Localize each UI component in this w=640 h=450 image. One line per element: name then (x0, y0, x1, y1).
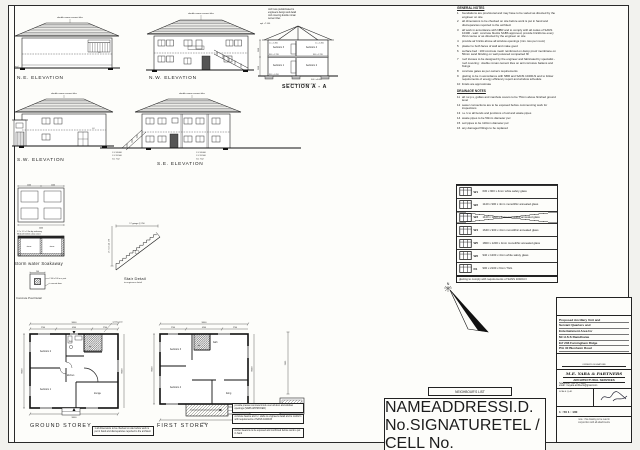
section-dim-lower: 2550 (258, 66, 260, 70)
title-block-spacer (557, 298, 631, 316)
window-description: 1140 x 1200 x 4mm monolithic annealed gl… (483, 216, 540, 219)
window-icon (459, 264, 472, 273)
note-item: 4 provide air bricks above all window op… (457, 40, 560, 43)
window-description: 1140 x 900 x 4mm monolithic annealed gla… (483, 203, 539, 206)
note-item: 6 surface bed : 100 concrete mesh reinfo… (457, 50, 560, 57)
lintols-note-box: provide precast concrete lintols over al… (232, 403, 304, 413)
note-text: i.e.'s to all bends and junctions of soi… (462, 112, 560, 115)
architectural-drawing-sheet: double roman cement tiles f.f.l n.g.l N.… (0, 0, 640, 450)
gplan-room-e: lounge (94, 393, 102, 395)
firm-box: M.E. YARA & PARTNERS ARCHITECTURAL SERVI… (557, 370, 631, 389)
firm-name: M.E. YARA & PARTNERS (559, 371, 629, 376)
scales-value: 1 : 50 1 : 100 (559, 410, 577, 414)
stair-detail-sublabel: to engineers detail (124, 282, 142, 284)
window-icon (459, 200, 472, 209)
window-icon (459, 187, 472, 196)
window-description: 900 x 2100 x 6mm TGG (483, 267, 513, 270)
ne-ngl-text: n.g.l (15, 66, 19, 68)
note-text: glazing to be in accordance with NBR and… (462, 75, 560, 82)
architect-signature-icon (599, 390, 629, 404)
note-item: 15 soil pipes to be 110mm diameter pvc (457, 122, 560, 125)
stair-side-dim: 17 risers @ 176 (109, 238, 111, 253)
gplan-seg-1: 2700 (41, 327, 45, 329)
window-icon (459, 213, 472, 222)
section-lvl-mr: F.F.L +2.720 (313, 54, 323, 56)
note-text: soil pipes to be 110mm diameter pvc (462, 122, 560, 125)
window-description: 940 x 1200 x 4mm white safety glass (483, 254, 529, 257)
window-description: 1800 x 1200 x 4mm monolithic annealed gl… (483, 242, 541, 245)
note-item: 2 all dimensions to be checked on site b… (457, 20, 560, 27)
neighbours-column-header: ADDRESS (431, 399, 508, 416)
section-note-4: cement tiles (268, 17, 281, 20)
note-item: 11 all r.w.p.s, gullies and manhole cove… (457, 96, 560, 103)
se-elevation-drawing: double roman cement tiles (96, 90, 306, 164)
se-level-2b: C.L 95.500 (196, 155, 207, 157)
soakaway-drawing: 1200 1200 2400 1.2 x 1.2 x 2.0m dp soaka… (12, 184, 74, 260)
fplan-room-b: bath (213, 341, 218, 344)
window-code: W5 (474, 241, 481, 245)
soakaway-dim-a: 1200 (27, 185, 31, 187)
note-item: 13 i.e.'s to all bends and junctions of … (457, 112, 560, 115)
note-item: 9 glazing to be in accordance with NBR a… (457, 75, 560, 82)
window-schedule: W1 630 x 900 x 4mm white safety glass W2… (456, 184, 558, 276)
gplan-awning-note: awning over (113, 321, 124, 324)
dimensions-note-box: 1 all dimensions to be checked on site b… (92, 426, 154, 436)
note-text: all r.w.p.s, gullies and manhole covers … (462, 96, 560, 103)
se-elevation-label: S.E. ELEVATION (157, 162, 203, 167)
window-icon (459, 226, 472, 235)
section-room-bl: bedroom 1 (273, 64, 285, 67)
se-level-3a: G.L 7.62 (112, 158, 120, 160)
section-wpl: wpl +7.140 (260, 23, 271, 25)
section-lvl-tr: C.L +5.350 (315, 43, 324, 45)
fplan-seg-2: 4200 (202, 327, 206, 329)
post-note-2: concrete base (51, 282, 62, 285)
project-title-line: P/A 40 Blenheim Road (559, 346, 629, 352)
drainage-notes-title: DRAINAGE NOTES (457, 90, 560, 94)
fplan-dim-left: 8600 (152, 366, 154, 372)
ne-elevation-label: N.E. ELEVATION (17, 76, 64, 81)
post-dim: 200 (36, 271, 39, 273)
window-icon (459, 251, 472, 260)
note-item: 8 concrete gates as per owners requireme… (457, 70, 560, 73)
section-room-br: bedroom 2 (306, 64, 318, 67)
note-text: any damaged fittings to be replaced (462, 127, 560, 130)
neighbours-column-header: SIGNATURE (410, 417, 502, 434)
note-item: 16 any damaged fittings to be replaced (457, 127, 560, 130)
section-room-tr: bedroom 4 (306, 46, 318, 49)
fplan-room-d: living (226, 393, 232, 395)
gplan-seg-3: 2700 (103, 327, 107, 329)
window-code: W3 (474, 215, 481, 219)
note-text: all work in accordance with NBR and to c… (462, 29, 560, 39)
gplan-dim-right: 8600 (122, 368, 124, 374)
window-schedule-entry: W5 1800 x 1200 x 4mm monolithic annealed… (457, 236, 557, 249)
soakaway-cell-1: stone (27, 245, 32, 248)
note-text: roof trusses to be designed by the engin… (462, 58, 560, 68)
window-code: W2 (474, 203, 481, 207)
section-note-3: roof covering double roman (268, 14, 297, 17)
note-text: sewer connections are to be exposed befo… (462, 104, 560, 111)
gplan-stair-text: up (89, 346, 91, 348)
ne-elevation-drawing: double roman cement tiles f.f.l n.g.l (12, 14, 122, 78)
footer-line-2: conjunction with all attachments (557, 422, 631, 425)
window-schedule-entry: W1 630 x 900 x 4mm white safety glass (457, 185, 557, 198)
window-schedule-entry: W6 940 x 1200 x 4mm white safety glass (457, 249, 557, 262)
ground-storey-plan: 9600 2700 4200 2700 8600 8600 9600 bedro… (16, 316, 132, 424)
sw-elevation-label: S.W. ELEVATION (17, 158, 64, 163)
window-description: 1640 x 900 x 4mm monolithic annealed gla… (483, 229, 539, 232)
soakaway-label: Storm water Soakaway (14, 261, 63, 266)
note-item: 10 lintels are approximate (457, 83, 560, 86)
note-text: lintels are approximate (462, 83, 560, 86)
owners-signature-line (562, 366, 626, 367)
gplan-room-a: bedroom 2 (40, 350, 52, 353)
title-block: Proposed Ancillary Unit andServant Quart… (556, 297, 632, 443)
soakaway-cell-2: stone (50, 245, 55, 248)
se-level-1b: C.L 96.000 (196, 152, 207, 154)
nw-elevation-drawing: double roman cement tiles (144, 10, 258, 78)
glazing-note: glazing to comply with requirements of S… (456, 276, 558, 283)
north-arrow: N (434, 276, 498, 340)
neighbours-list-title: NEIGHBOUR'S LIST (428, 387, 512, 396)
note-text: surface bed : 100 concrete mesh reinforc… (462, 50, 560, 57)
section-drawing: roof truss prefabricated to engineers de… (256, 6, 340, 86)
gplan-seg-2: 4200 (72, 327, 76, 329)
fplan-room-a: bedroom 3 (170, 348, 182, 351)
soakaway-note-2: filled with 40mm clean stone (17, 232, 41, 235)
section-note-1: roof truss prefabricated to (268, 8, 295, 11)
note-text: plaster to both faces of wall and make g… (462, 45, 560, 48)
section-note-2: engineers design and detail (268, 11, 297, 14)
fplan-room-c: bedroom 4 (170, 386, 182, 389)
note-item: 5 plaster to both faces of wall and make… (457, 45, 560, 48)
ground-storey-label: GROUND STOREY (30, 423, 92, 429)
neighbours-column-header: NAME (385, 399, 431, 416)
general-notes-title: GENERAL NOTES (457, 7, 560, 11)
nw-elevation-label: N.W. ELEVATION (149, 76, 197, 81)
ne-roof-note: double roman cement tiles (57, 16, 84, 19)
se-roof-note: double roman cement tiles (179, 92, 206, 95)
window-code: D1 (474, 267, 481, 271)
note-text: concrete gates as per owners requirement… (462, 70, 560, 73)
north-letter: N (447, 282, 450, 286)
window-schedule-entry: D1 900 x 2100 x 6mm TGG (457, 262, 557, 275)
gplan-room-c: bedroom 1 (40, 388, 52, 391)
signature-divider-v (593, 389, 594, 407)
section-room-tl: bedroom 3 (273, 46, 285, 49)
window-description: 630 x 900 x 4mm white safety glass (483, 190, 527, 193)
window-schedule-entry: W2 1140 x 900 x 4mm monolithic annealed … (457, 198, 557, 211)
post-note-1: 100 x 100 m.s. post (51, 277, 67, 280)
general-notes: GENERAL NOTES 1 foundations are provisio… (457, 7, 560, 132)
neighbours-table: NAMEADDRESSI.D. No.SIGNATURETEL / CELL N… (384, 398, 546, 450)
note-item: 12 sewer connections are to be exposed b… (457, 104, 560, 111)
gplan-dim-left: 8600 (22, 368, 24, 374)
general-notes-list: 1 foundations are provisional and may ha… (457, 12, 560, 86)
note-text: waste pipes to be 50mm diameter pvc (462, 117, 560, 120)
stair-detail-label: Stair Detail (124, 276, 146, 281)
section-lvl-tl: C.L +5.350 (269, 43, 278, 45)
window-code: W6 (474, 254, 481, 258)
fragment-dim: 3600 (285, 360, 287, 365)
scale-signature-box: SCALE @ A1 1 : 50 1 : 100 (557, 389, 631, 417)
firm-subtitle: ARCHITECTURAL SERVICES (563, 377, 625, 383)
stair-top-dim: 17 goings @ 250 (129, 223, 145, 225)
se-level-3b: G.L 7.62 (196, 158, 204, 160)
project-title-box: Proposed Ancillary Unit andServant Quart… (557, 316, 631, 354)
se-level-1a: C.L 96.000 (112, 152, 123, 154)
beacons-note-box: corner beacons to be exposed and confirm… (232, 428, 304, 438)
gplan-dim-top: 9600 (72, 322, 78, 324)
fplan-seg-1: 2700 (171, 327, 175, 329)
drainage-notes-list: 11 all r.w.p.s, gullies and manhole cove… (457, 96, 560, 131)
window-schedule-entry: W4 1640 x 900 x 4mm monolithic annealed … (457, 223, 557, 236)
fplan-dim-top: 9600 (202, 322, 208, 324)
note-text: provide air bricks above all window open… (462, 40, 560, 43)
note-item: 3 all work in accordance with NBR and to… (457, 29, 560, 39)
section-lvl-ml: F.F.L +2.720 (269, 54, 279, 56)
title-block-footer: note : this drawing to be read in conjun… (557, 417, 631, 424)
first-storey-label: FIRST STOREY (157, 423, 209, 429)
note-item: 14 waste pipes to be 50mm diameter pvc (457, 117, 560, 120)
window-code: W4 (474, 228, 481, 232)
soakaway-dim-b: 1200 (51, 185, 55, 187)
beams-note-box: concrete beams and r.c. slabs to enginee… (232, 414, 304, 424)
note-item: 7 roof trusses to be designed by the eng… (457, 58, 560, 68)
stair-detail-drawing: 17 goings @ 250 17 risers @ 176 (100, 216, 164, 274)
section-dim-upper: 2550 (258, 48, 260, 52)
nw-roof-note: double roman cement tiles (188, 12, 215, 15)
fplan-stair-text: dn (198, 345, 200, 347)
soakaway-dim-c: 2400 (39, 228, 43, 230)
scale-label: SCALE @ A1 (559, 391, 572, 393)
note-item: 1 foundations are provisional and may ha… (457, 12, 560, 19)
sw-roof-note: double roman cement tiles (51, 92, 78, 95)
owners-signature-box: OWNER'S SIGNATURE (557, 354, 631, 370)
firm-email: email : meyara.architects@gmail.com (559, 385, 629, 387)
fplan-dim-right: 8600 (252, 366, 254, 372)
window-code: W1 (474, 190, 481, 194)
window-schedule-entry: W3 1140 x 1200 x 4mm monolithic annealed… (457, 211, 557, 224)
plan-fragment: 3600 (276, 328, 308, 428)
gplan-room-b: w.c. (69, 341, 73, 343)
gplan-dim-bottom: 9600 (72, 417, 78, 419)
fplan-seg-3: 2700 (233, 327, 237, 329)
section-lvl-gr: N.G.L ±0.000 (311, 79, 322, 81)
window-icon (459, 239, 472, 248)
note-text: all dimensions to be checked on site bef… (462, 20, 560, 27)
post-detail-drawing: 200 100 x 100 m.s. post concrete base (14, 270, 66, 296)
gplan-room-d: kitchen (67, 374, 75, 377)
signature-divider-h (557, 406, 631, 407)
se-level-2a: C.L 95.500 (112, 155, 123, 157)
post-detail-label: Concrete Post Detail (16, 296, 42, 300)
note-text: foundations are provisional and may have… (462, 12, 560, 19)
